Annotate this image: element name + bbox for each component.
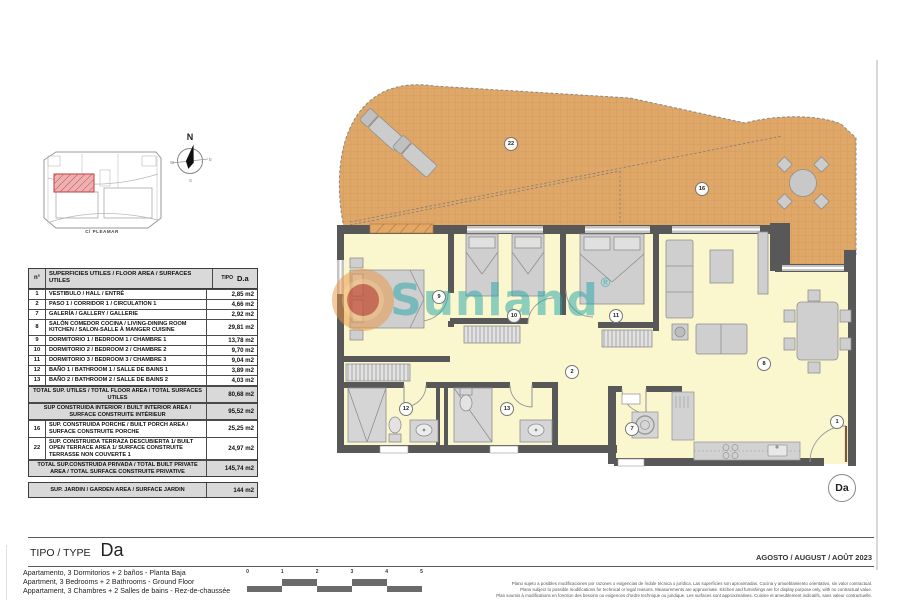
scale-tick: 5 — [419, 569, 424, 575]
disclaimer-line: Plan soumis à modifications en fonction … — [430, 593, 872, 599]
table-row: 13 BAÑO 2 / BATHROOM 2 / SALLE DE BAINS … — [29, 375, 257, 385]
site-plan — [40, 148, 164, 232]
row-number: 11 — [29, 356, 46, 365]
table-row: 7 GALERÍA / GALLERY / GALLERIE 2,92 m2 — [29, 309, 257, 319]
compass-icon: N W E S — [168, 128, 214, 186]
table-row: 8 SALÓN COMEDOR COCINA / LIVING-DINING R… — [29, 319, 257, 335]
table-row: 9 DORMITORIO 1 / BEDROOM 1 / CHAMBRE 1 1… — [29, 335, 257, 345]
apartment-description: Apartamento, 3 Dormitorios + 2 baños - P… — [23, 569, 230, 596]
scale-tick: 2 — [315, 569, 320, 575]
table-row: 11 DORMITORIO 3 / BEDROOM 3 / CHAMBRE 3 … — [29, 355, 257, 365]
footer-divider-top — [28, 537, 874, 538]
row-desc: BAÑO 1 / BATHROOM 1 / SALLE DE BAINS 1 — [46, 366, 207, 375]
row-number: 1 — [29, 290, 46, 299]
room-label-22: 22 — [504, 137, 518, 151]
row-value: 2,92 m2 — [207, 310, 257, 319]
type-title: TIPO / TYPE Da — [30, 540, 124, 561]
table-row: 12 BAÑO 1 / BATHROOM 1 / SALLE DE BAINS … — [29, 365, 257, 375]
row-number: 9 — [29, 336, 46, 345]
room-label-1: 1 — [830, 415, 844, 429]
row-value: 9,04 m2 — [207, 356, 257, 365]
room-label-9: 9 — [432, 290, 446, 304]
row-value: 4,03 m2 — [207, 376, 257, 385]
table-row-built-interior: SUP CONSTRUIDA INTERIOR / BUILT INTERIOR… — [29, 402, 257, 419]
room-label-8: 8 — [757, 357, 771, 371]
scale-tick: 0 — [245, 569, 250, 575]
room-label-10: 10 — [507, 309, 521, 323]
description-line: Apartamento, 3 Dormitorios + 2 baños - P… — [23, 569, 230, 578]
room-label-13: 13 — [500, 402, 514, 416]
table-body: 1 VESTIBULO / HALL / ENTRÉ 2,85 m2 2 PAS… — [29, 289, 257, 385]
scale-tick: 4 — [384, 569, 389, 575]
table-header: n° SUPERFICIES UTILES / FLOOR AREA / SUR… — [29, 269, 257, 289]
table-row-porch: 16 SUP. CONSTRUIDA PORCHE / BUILT PORCH … — [29, 419, 257, 436]
row-desc: GALERÍA / GALLERY / GALLERIE — [46, 310, 207, 319]
row-value: 3,89 m2 — [207, 366, 257, 375]
table-row: 10 DORMITORIO 2 / BEDROOM 2 / CHAMBRE 2 … — [29, 345, 257, 355]
svg-text:E: E — [209, 157, 212, 162]
sheet-border-left — [6, 545, 7, 600]
row-value: 2,85 m2 — [207, 290, 257, 299]
street-label: C/ PLEAMAR — [52, 229, 152, 234]
table-row: 2 PASO 1 / CORRIDOR 1 / CIRCULATION 1 4,… — [29, 299, 257, 309]
row-value: 9,70 m2 — [207, 346, 257, 355]
row-number: 12 — [29, 366, 46, 375]
table-row-open-terrace: 22 SUP. CONSTRUIDA TERRAZA DESCUBIERTA 1… — [29, 437, 257, 460]
room-label-11: 11 — [609, 309, 623, 323]
description-line: Apartment, 3 Bedrooms + 2 Bathrooms - Gr… — [23, 578, 230, 587]
row-desc: SALÓN COMEDOR COCINA / LIVING-DINING ROO… — [46, 320, 207, 335]
table-row-total-utiles: TOTAL SUP. UTILES / TOTAL FLOOR AREA / T… — [29, 385, 257, 402]
header-tipo: TIPO D.a — [213, 269, 257, 288]
disclaimer: Plano sujeto a posibles modificaciones p… — [430, 581, 872, 599]
row-number: 8 — [29, 320, 46, 335]
row-value: 13,78 m2 — [207, 336, 257, 345]
room-label-12: 12 — [399, 402, 413, 416]
row-desc: DORMITORIO 1 / BEDROOM 1 / CHAMBRE 1 — [46, 336, 207, 345]
room-label-2: 2 — [565, 365, 579, 379]
footer-divider-bottom — [28, 566, 874, 567]
row-desc: VESTIBULO / HALL / ENTRÉ — [46, 290, 207, 299]
header-num: n° — [29, 269, 46, 288]
site-highlight-unit — [54, 174, 94, 192]
planter — [370, 224, 433, 233]
row-value: 4,66 m2 — [207, 300, 257, 309]
table-row-garden: SUP. JARDIN / GARDEN AREA / SURFACE JARD… — [28, 482, 258, 498]
plan-sheet: N W E S C/ PLEAMAR — [0, 0, 900, 600]
room-label-16: 16 — [695, 182, 709, 196]
description-line: Appartament, 3 Chambres + 2 Salles de ba… — [23, 587, 230, 596]
scale-ticks: 012345 — [245, 569, 424, 575]
type-value: Da — [101, 540, 124, 561]
floor-plan — [330, 68, 885, 508]
table-row: 1 VESTIBULO / HALL / ENTRÉ 2,85 m2 — [29, 289, 257, 299]
area-table: n° SUPERFICIES UTILES / FLOOR AREA / SUR… — [28, 268, 258, 498]
row-number: 10 — [29, 346, 46, 355]
header-desc: SUPERFICIES UTILES / FLOOR AREA / SURFAC… — [46, 269, 213, 288]
scale-bar — [247, 579, 422, 592]
row-desc: BAÑO 2 / BATHROOM 2 / SALLE DE BAINS 2 — [46, 376, 207, 385]
row-desc: DORMITORIO 2 / BEDROOM 2 / CHAMBRE 2 — [46, 346, 207, 355]
row-desc: PASO 1 / CORRIDOR 1 / CIRCULATION 1 — [46, 300, 207, 309]
row-number: 13 — [29, 376, 46, 385]
date-label: AGOSTO / AUGUST / AOÛT 2023 — [756, 553, 872, 562]
svg-text:S: S — [189, 178, 192, 183]
type-label: TIPO / TYPE — [30, 547, 91, 559]
scale-tick: 3 — [349, 569, 354, 575]
unit-type-badge: Da — [828, 474, 856, 502]
scale-tick: 1 — [280, 569, 285, 575]
row-number: 7 — [29, 310, 46, 319]
row-value: 29,81 m2 — [207, 320, 257, 335]
row-desc: DORMITORIO 3 / BEDROOM 3 / CHAMBRE 3 — [46, 356, 207, 365]
table-row-total-private: TOTAL SUP.CONSTRUIDA PRIVADA / TOTAL BUI… — [29, 459, 257, 476]
room-label-7: 7 — [625, 422, 639, 436]
row-number: 2 — [29, 300, 46, 309]
svg-text:N: N — [187, 132, 194, 142]
